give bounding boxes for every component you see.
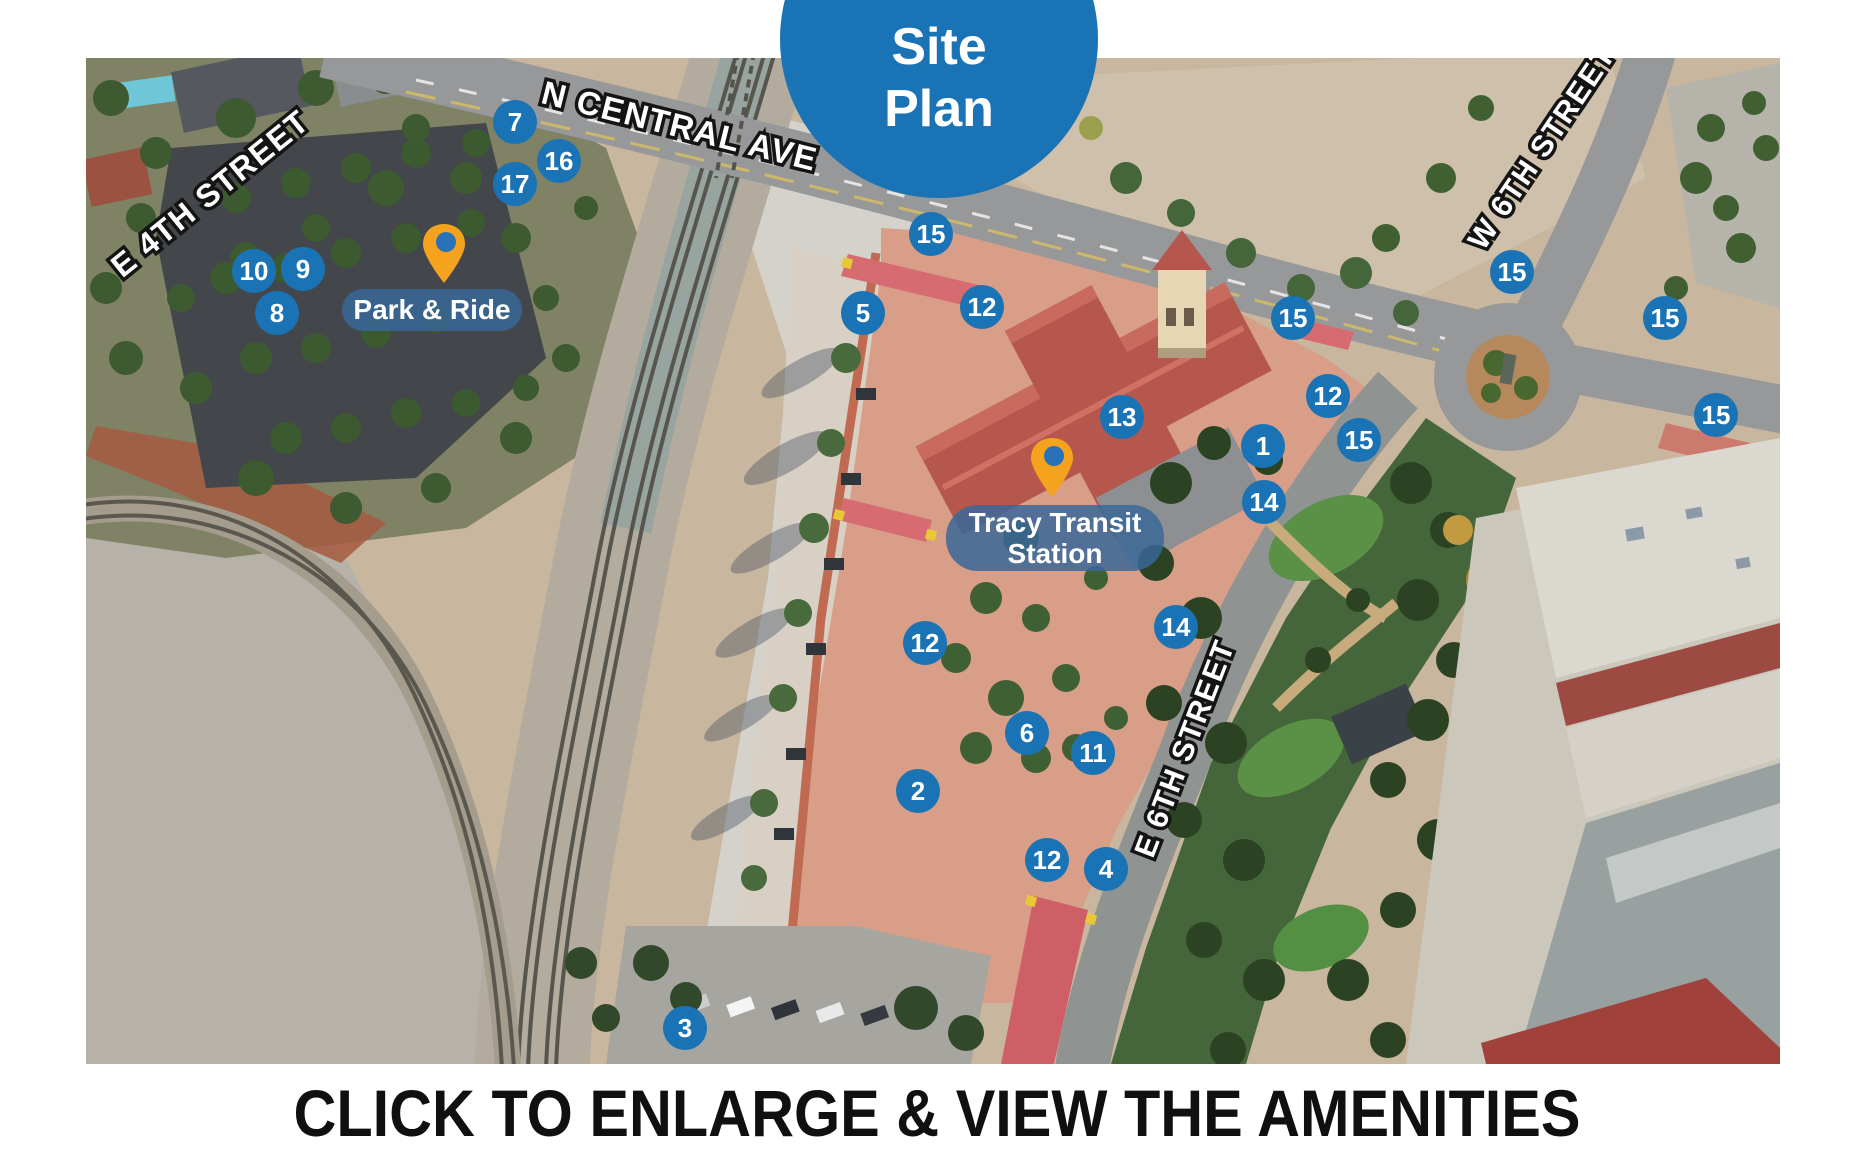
map-marker-13[interactable]: 13 xyxy=(1100,395,1144,439)
map-marker-5[interactable]: 5 xyxy=(841,291,885,335)
site-plan-badge-line2: Plan xyxy=(884,78,994,140)
map-marker-10[interactable]: 10 xyxy=(232,249,276,293)
map-marker-12[interactable]: 12 xyxy=(1306,374,1350,418)
map-marker-17[interactable]: 17 xyxy=(493,162,537,206)
park-and-ride-pin-icon xyxy=(418,221,470,283)
map-marker-4[interactable]: 4 xyxy=(1084,847,1128,891)
park-and-ride-label: Park & Ride xyxy=(342,289,522,331)
site-plan-map[interactable]: E 4TH STREET N CENTRAL AVE W 6TH STREET … xyxy=(86,58,1780,1064)
map-marker-15[interactable]: 15 xyxy=(1271,296,1315,340)
aerial-map-art: E 4TH STREET N CENTRAL AVE W 6TH STREET … xyxy=(86,58,1780,1064)
map-marker-12[interactable]: 12 xyxy=(903,621,947,665)
map-marker-11[interactable]: 11 xyxy=(1071,731,1115,775)
map-marker-6[interactable]: 6 xyxy=(1005,711,1049,755)
map-marker-15[interactable]: 15 xyxy=(1643,296,1687,340)
tracy-transit-label: Tracy Transit Station xyxy=(946,505,1164,571)
map-marker-14[interactable]: 14 xyxy=(1154,605,1198,649)
map-marker-16[interactable]: 16 xyxy=(537,139,581,183)
site-plan-badge-line1: Site xyxy=(891,16,986,78)
map-marker-15[interactable]: 15 xyxy=(1337,418,1381,462)
map-marker-2[interactable]: 2 xyxy=(896,769,940,813)
tracy-transit-pin-icon xyxy=(1026,435,1078,497)
map-marker-14[interactable]: 14 xyxy=(1242,480,1286,524)
map-marker-15[interactable]: 15 xyxy=(909,212,953,256)
map-marker-15[interactable]: 15 xyxy=(1694,393,1738,437)
map-marker-7[interactable]: 7 xyxy=(493,100,537,144)
map-marker-12[interactable]: 12 xyxy=(960,285,1004,329)
enlarge-caption: CLICK TO ENLARGE & VIEW THE AMENITIES xyxy=(94,1080,1781,1146)
map-marker-1[interactable]: 1 xyxy=(1241,424,1285,468)
map-marker-15[interactable]: 15 xyxy=(1490,250,1534,294)
map-marker-9[interactable]: 9 xyxy=(281,247,325,291)
map-marker-3[interactable]: 3 xyxy=(663,1006,707,1050)
map-marker-12[interactable]: 12 xyxy=(1025,838,1069,882)
map-marker-8[interactable]: 8 xyxy=(255,291,299,335)
